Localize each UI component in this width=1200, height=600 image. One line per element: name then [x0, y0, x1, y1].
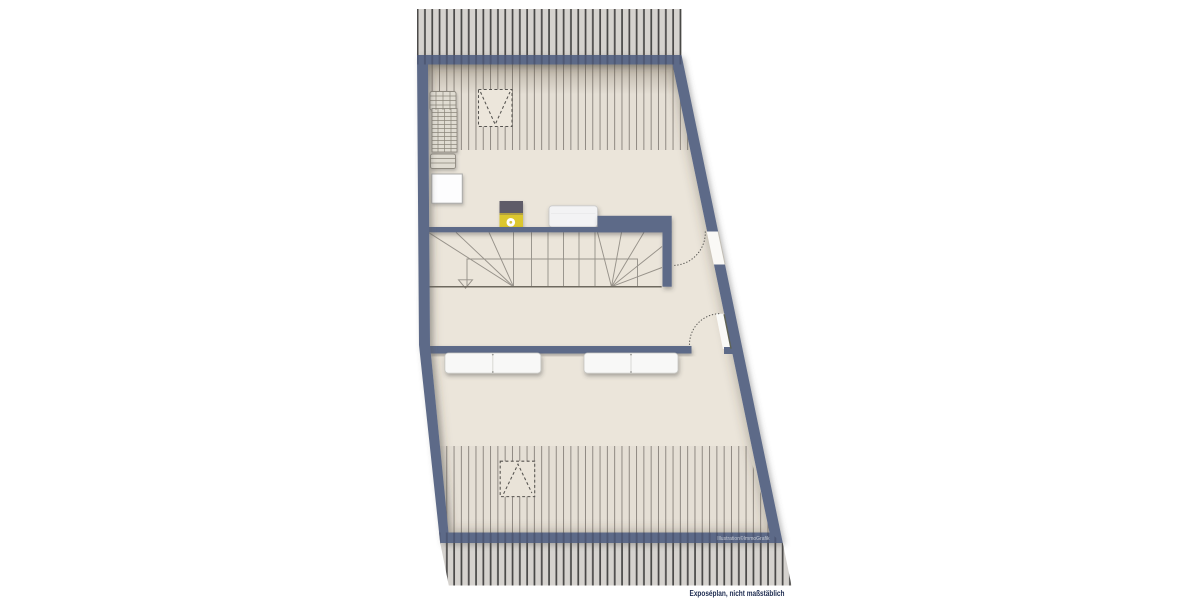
- svg-text:Exposéplan, nicht maßstäblich: Exposéplan, nicht maßstäblich: [690, 589, 785, 598]
- svg-text:Illustration©ImmoGrafik: Illustration©ImmoGrafik: [717, 535, 770, 542]
